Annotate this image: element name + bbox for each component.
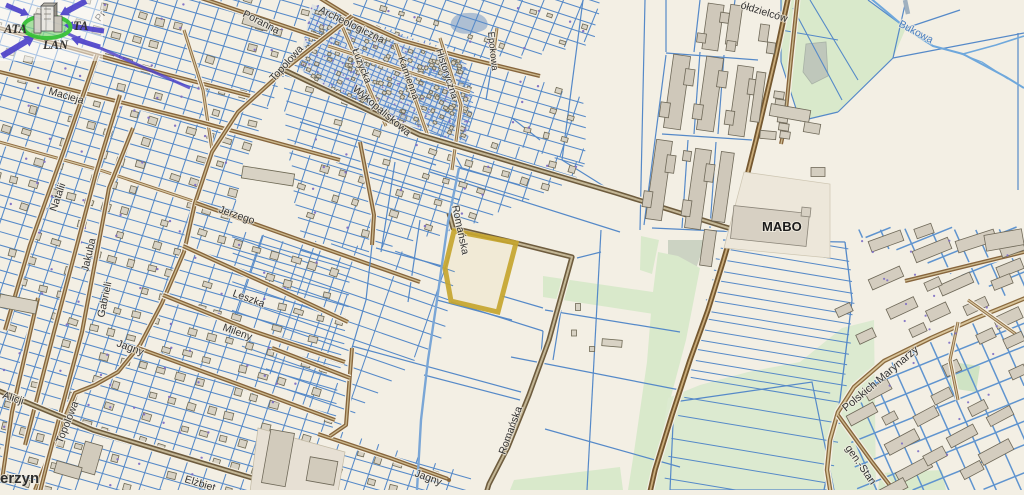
svg-text:erzyn: erzyn [0, 470, 39, 487]
svg-text:TA: TA [73, 19, 88, 33]
svg-text:MABO: MABO [762, 219, 802, 234]
svg-text:LAN: LAN [42, 38, 69, 52]
svg-text:ATA: ATA [3, 22, 27, 36]
